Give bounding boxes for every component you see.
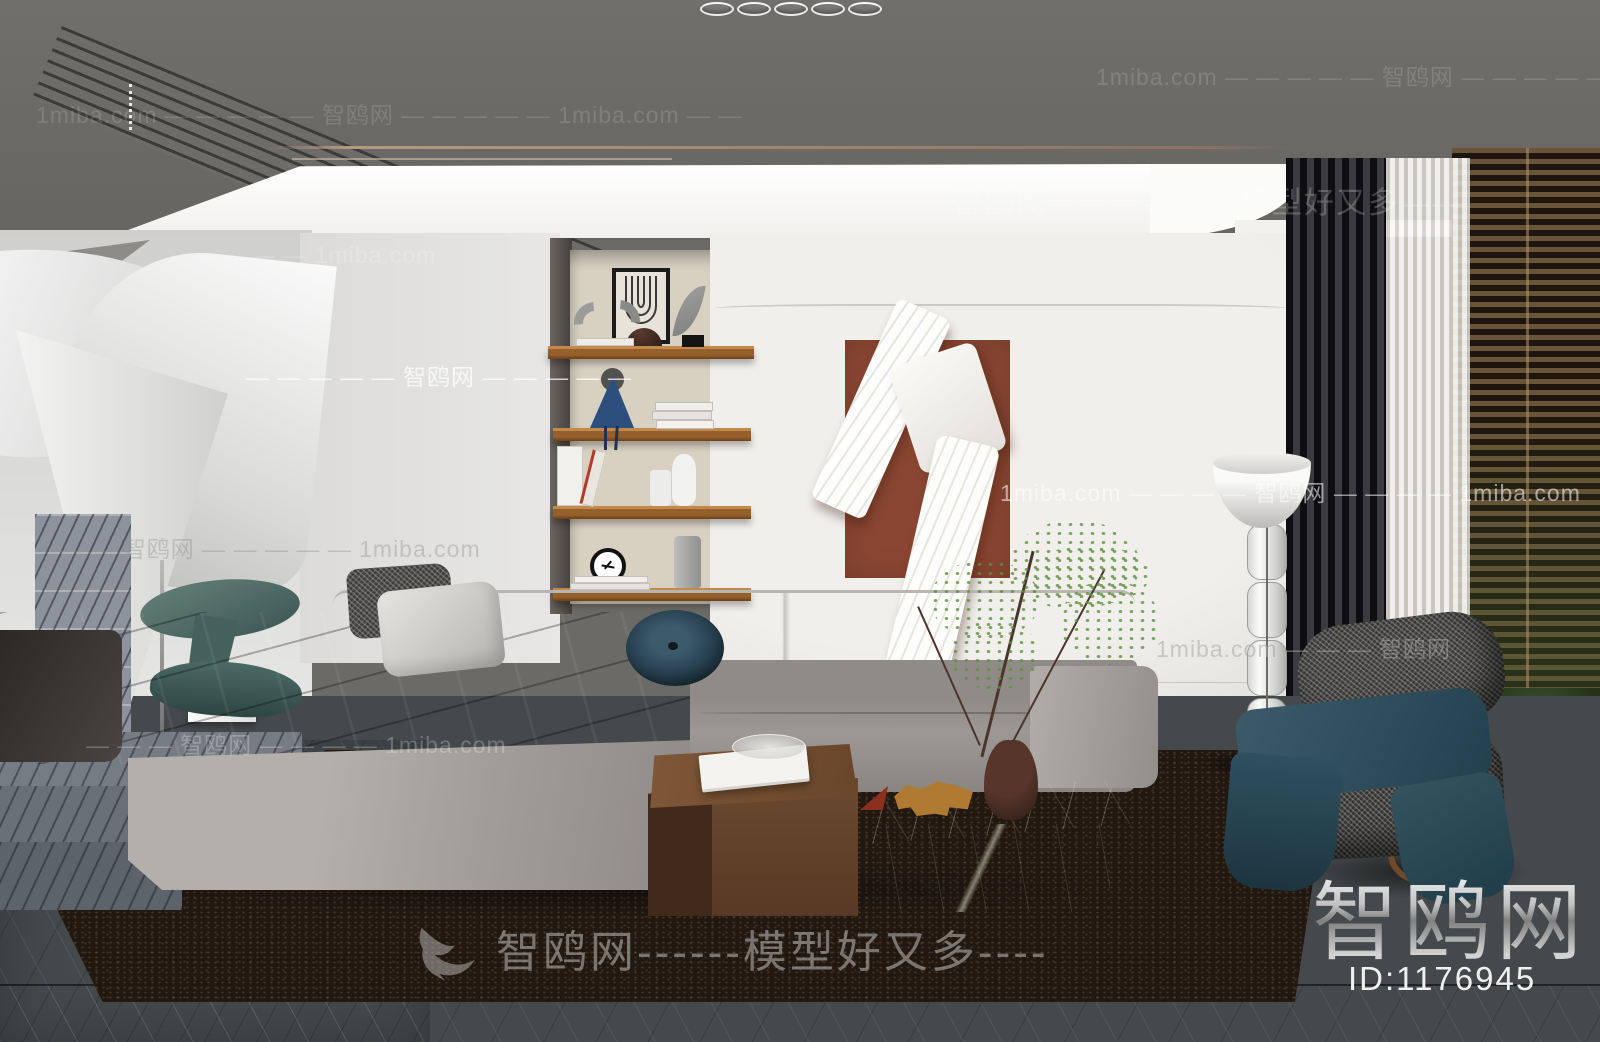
plant-foliage	[1030, 545, 1150, 605]
watermark-row: 1miba.com — — — — 智鸥网 — — — — 1miba.com	[1000, 474, 1581, 508]
watermark-row: — — 1miba.com	[252, 242, 436, 269]
niche-side-reveal	[550, 238, 572, 614]
model-id: ID:1176945	[1348, 960, 1536, 998]
ceiling-trim-line	[292, 158, 672, 160]
watermark-row: 智鸥网——————模型好又多——	[952, 178, 1464, 222]
pillow-button	[668, 642, 678, 650]
ceiling-light-icon	[774, 2, 808, 16]
ceiling-light-icon	[848, 2, 882, 16]
watermark-row: — — — 智鸥网 — — — — 1miba.com	[86, 726, 507, 760]
bird-logo-icon	[414, 916, 486, 982]
lamp-bowl-rim	[1213, 452, 1311, 474]
ceiling-light-icon	[700, 2, 734, 16]
shelf-book	[576, 338, 634, 346]
gray-cylinder-vase	[674, 536, 701, 588]
plant-foliage	[950, 620, 1040, 690]
wood-shelf	[553, 428, 751, 441]
white-bottle-vase	[672, 454, 696, 506]
watermark-row: — — 智鸥网 — — — — — 1miba.com	[60, 530, 481, 564]
book-stack	[652, 411, 712, 420]
site-logo: 智鸥网	[1312, 852, 1588, 977]
sofa-right-end	[1030, 666, 1158, 788]
wall-seam-line	[714, 304, 1288, 313]
ceiling-light-icon	[737, 2, 771, 16]
watermark-row: 1miba.com — — — — — 智鸥网 — — — — — 1miba.…	[36, 96, 742, 130]
watermark-row: — — — — — 智鸥网 — — — — —	[246, 358, 632, 392]
sofa-chaise-front	[128, 740, 694, 890]
book-stack	[574, 576, 648, 583]
plant-vase	[984, 740, 1038, 820]
watermark-row: 1miba.com — — — — — 智鸥网 — — — — —	[1096, 58, 1600, 92]
leaf-sculpture-base	[682, 335, 704, 347]
figurine-leg	[604, 426, 607, 450]
glass-bowl	[732, 734, 806, 760]
watermark-banner: 智鸥网------模型好又多----	[496, 916, 1049, 980]
ceiling-light-icon	[811, 2, 845, 16]
white-vase	[650, 470, 671, 506]
book-stack	[656, 420, 714, 429]
standing-book	[557, 446, 583, 506]
wood-shelf	[553, 506, 751, 519]
interior-render-image: 1miba.com — — — — — 智鸥网 — — — — — 1miba.…	[0, 0, 1600, 1042]
book-stack	[655, 402, 713, 411]
book-stack	[570, 583, 650, 590]
white-pillow	[376, 580, 506, 678]
watermark-row: 1miba.com — — — 智鸥网	[1156, 630, 1451, 664]
ceiling-trim-line	[268, 146, 1288, 149]
